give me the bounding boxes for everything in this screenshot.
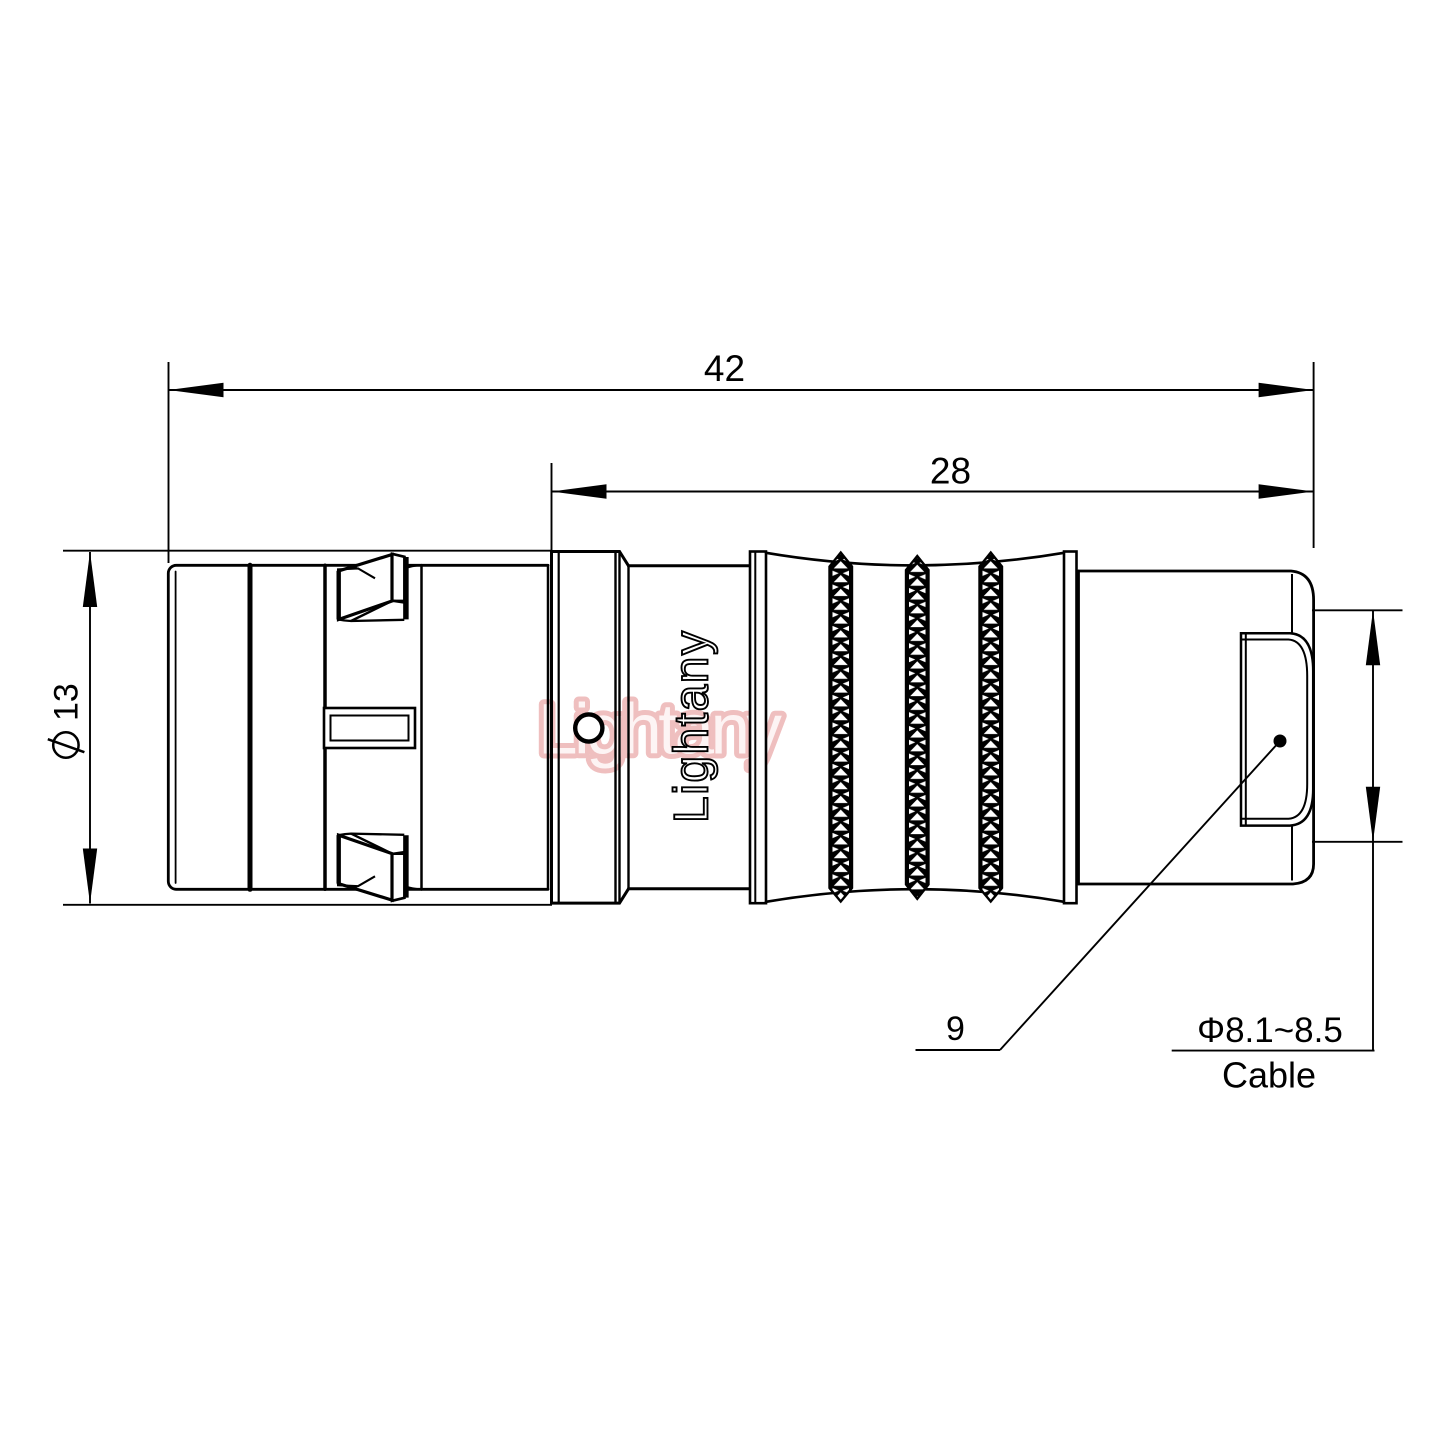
svg-text:42: 42 [704,348,745,389]
svg-text:28: 28 [930,451,971,492]
svg-text:9: 9 [946,1010,965,1048]
svg-text:13: 13 [48,683,86,721]
svg-text:Lightany: Lightany [666,630,719,823]
svg-text:Cable: Cable [1222,1055,1316,1096]
svg-text:Φ8.1~8.5: Φ8.1~8.5 [1197,1011,1343,1050]
